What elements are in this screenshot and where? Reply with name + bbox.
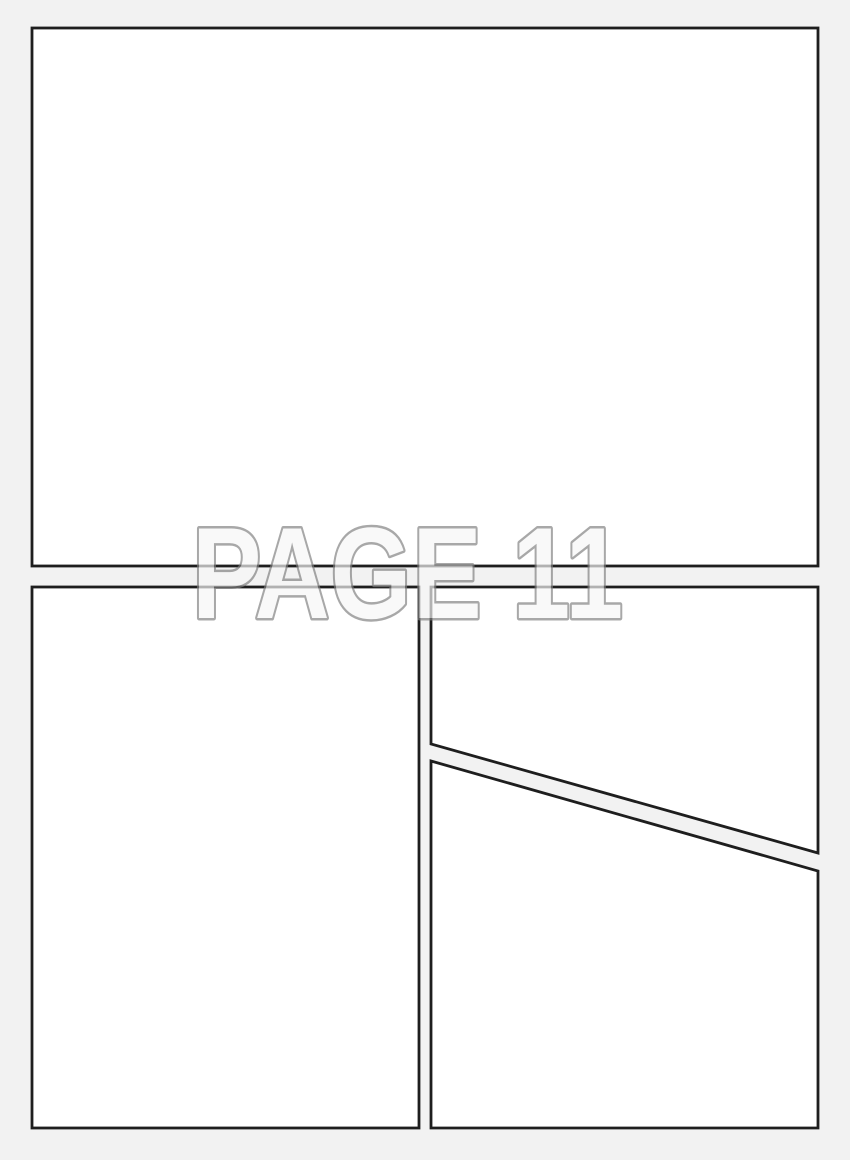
- panel-bottom-left: [32, 587, 419, 1128]
- panel-top: [32, 28, 818, 566]
- page-number-watermark: PAGE 11: [192, 500, 624, 646]
- comic-page-template: PAGE 11: [0, 0, 850, 1160]
- comic-page-canvas: PAGE 11: [0, 0, 850, 1160]
